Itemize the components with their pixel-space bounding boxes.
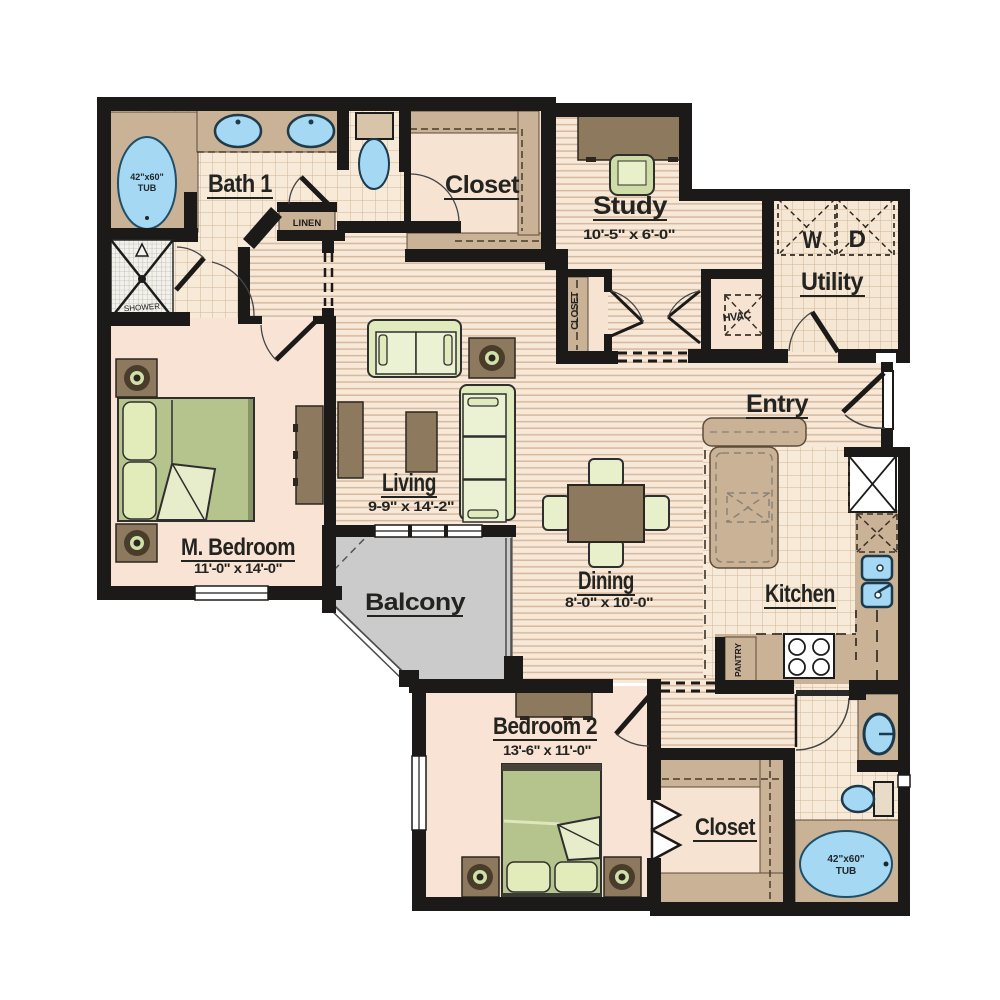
svg-text:Entry: Entry [746,390,809,418]
svg-text:Utility: Utility [801,268,864,296]
svg-text:Study: Study [593,192,668,220]
svg-text:13'-6" x 11'-0": 13'-6" x 11'-0" [503,742,591,758]
svg-text:10'-5" x 6'-0": 10'-5" x 6'-0" [583,226,675,242]
svg-text:Dining: Dining [578,567,634,595]
svg-text:42"x60": 42"x60" [130,172,164,182]
svg-text:42"x60": 42"x60" [827,854,865,865]
svg-text:TUB: TUB [836,866,857,877]
svg-text:Living: Living [382,469,436,497]
svg-text:Bath 1: Bath 1 [208,170,273,198]
svg-text:CLOSET: CLOSET [570,292,581,330]
svg-text:LINEN: LINEN [293,218,322,229]
svg-text:Closet: Closet [695,814,755,841]
svg-text:PANTRY: PANTRY [733,643,743,677]
svg-text:Closet: Closet [445,171,520,199]
svg-text:11'-0" x 14'-0": 11'-0" x 14'-0" [194,560,282,576]
svg-text:Bedroom 2: Bedroom 2 [493,713,597,740]
svg-text:W: W [803,227,823,254]
svg-text:Balcony: Balcony [365,589,466,616]
svg-text:TUB: TUB [138,183,157,193]
svg-text:Kitchen: Kitchen [765,580,835,608]
svg-text:M. Bedroom: M. Bedroom [181,534,295,561]
svg-text:9-9" x 14'-2": 9-9" x 14'-2" [368,498,454,514]
svg-text:D: D [849,226,866,253]
svg-text:8'-0" x 10'-0": 8'-0" x 10'-0" [565,594,653,610]
